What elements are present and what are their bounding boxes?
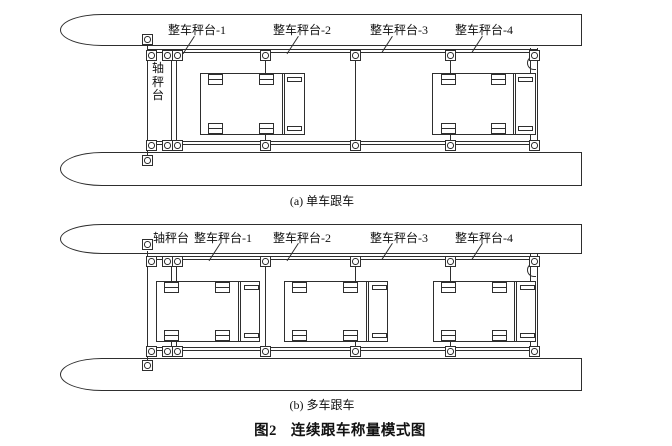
load-cell-sensor [146,256,157,267]
truck [284,281,388,342]
platform-boundary-line [265,260,266,348]
rail-line [147,144,538,145]
load-cell-sensor [146,346,157,357]
sensor-dot [144,36,151,43]
load-cell-sensor [350,140,361,151]
platform-boundary-line [355,53,356,141]
sensor-dot [148,348,155,355]
cab-wheel-bar [287,126,302,131]
wheel-axle-line [441,79,456,80]
sensor-dot [262,52,269,59]
wheel-axle-line [491,128,506,129]
truck [200,73,305,135]
platform-label-a3: 整车秤台-3 [370,21,428,38]
platform-label-a4: 整车秤台-4 [455,21,513,38]
sensor-dot [447,52,454,59]
sensor-dot [144,157,151,164]
truck-wheel [492,330,507,341]
cab-wheel-bar [518,77,533,82]
sensor-dot [174,52,181,59]
axle-scale-left-line [147,45,148,155]
load-cell-sensor [445,50,456,61]
load-cell-sensor [146,50,157,61]
truck-wheel [492,282,507,293]
subcaption-a: (a) 单车跟车 [290,192,354,209]
cab-wheel-bar [287,77,302,82]
truck-wheel [441,123,456,134]
load-cell-sensor [142,239,153,250]
wheel-axle-line [208,128,223,129]
lane-strip-bottom-a [60,152,582,186]
load-cell-sensor [260,50,271,61]
sensor-dot [174,348,181,355]
sensor-dot [174,142,181,149]
truck [432,73,536,135]
rail-line [147,141,538,142]
wheel-axle-line [292,287,307,288]
truck-wheel [343,282,358,293]
load-cell-sensor [142,34,153,45]
platform-label-b1: 整车秤台-1 [194,229,252,246]
load-cell-sensor [172,256,183,267]
figure-caption: 图2连续跟车称量模式图 [254,419,426,440]
sensor-dot [352,258,359,265]
wheel-axle-line [259,79,274,80]
truck-wheel [491,74,506,85]
wheel-axle-line [441,128,456,129]
axle-scale-label-b: 轴秤台 [153,229,189,246]
sensor-dot [531,52,538,59]
sensor-dot [447,142,454,149]
load-cell-sensor [529,50,540,61]
truck-wheel [164,330,179,341]
cab-wheel-bar [518,126,533,131]
truck-wheel [491,123,506,134]
sensor-dot [144,241,151,248]
load-cell-sensor [172,50,183,61]
platform-label-a1: 整车秤台-1 [168,21,226,38]
sensor-dot [262,258,269,265]
axle-scale-left-line [147,251,148,361]
wheel-axle-line [492,335,507,336]
load-cell-sensor [445,346,456,357]
sensor-dot [148,52,155,59]
load-cell-sensor [350,50,361,61]
sensor-dot [447,348,454,355]
sensor-dot [531,258,538,265]
cab-wheel-bar [372,333,387,338]
truck-wheel [292,330,307,341]
subcaption-b: (b) 多车跟车 [290,396,355,413]
wheel-axle-line [441,335,456,336]
truck-wheel [259,74,274,85]
sensor-dot [174,258,181,265]
wheel-axle-line [343,287,358,288]
truck-wheel [441,330,456,341]
truck-wheel [441,74,456,85]
wheel-axle-line [215,287,230,288]
sensor-dot [148,258,155,265]
platform-label-b3: 整车秤台-3 [370,229,428,246]
wheel-axle-line [441,287,456,288]
sensor-dot [531,142,538,149]
truck-wheel [208,123,223,134]
wheel-axle-line [492,287,507,288]
platform1-left-line [176,61,177,140]
load-cell-sensor [260,256,271,267]
cab-wheel-bar [372,285,387,290]
rail-line [147,49,538,50]
truck-wheel [343,330,358,341]
truck-wheel [441,282,456,293]
cab-divider [513,74,516,134]
load-cell-sensor [172,346,183,357]
load-cell-sensor [445,140,456,151]
cab-divider [514,282,517,341]
wheel-axle-line [164,335,179,336]
load-cell-sensor [445,256,456,267]
truck [156,281,260,342]
truck-wheel [164,282,179,293]
rail-line [147,350,538,351]
wheel-axle-line [259,128,274,129]
cab-wheel-bar [244,285,259,290]
load-cell-sensor [529,256,540,267]
load-cell-sensor [529,140,540,151]
axle-scale-right-line [171,61,172,140]
lane-strip-bottom-b [60,358,582,391]
rail-line [147,256,538,257]
sensor-dot [164,348,171,355]
truck-wheel [292,282,307,293]
sensor-dot [144,362,151,369]
rail-line [147,52,538,53]
sensor-dot [352,348,359,355]
truck-wheel [215,330,230,341]
load-cell-sensor [260,140,271,151]
cab-wheel-bar [520,285,535,290]
wheel-axle-line [491,79,506,80]
sensor-dot [531,348,538,355]
cab-wheel-bar [520,333,535,338]
load-cell-sensor [146,140,157,151]
load-cell-sensor [172,140,183,151]
platform-label-b4: 整车秤台-4 [455,229,513,246]
sensor-dot [447,258,454,265]
pit-end-line [537,254,538,357]
platform-label-a2: 整车秤台-2 [273,21,331,38]
sensor-dot [352,142,359,149]
load-cell-sensor [350,256,361,267]
wheel-axle-line [215,335,230,336]
truck-wheel [208,74,223,85]
wheel-axle-line [343,335,358,336]
axle-scale-label-a: 轴秤台 [151,62,165,103]
load-cell-sensor [142,360,153,371]
wheel-axle-line [292,335,307,336]
cab-divider [366,282,369,341]
figure-2-canvas: 整车秤台-1 整车秤台-2 整车秤台-3 整车秤台-4 轴秤台 [0,0,672,446]
cab-wheel-bar [244,333,259,338]
sensor-dot [352,52,359,59]
sensor-dot [262,348,269,355]
pit-end-line [537,48,538,150]
sensor-dot [164,52,171,59]
sensor-dot [164,258,171,265]
load-cell-sensor [529,346,540,357]
load-cell-sensor [142,155,153,166]
rail-line [147,347,538,348]
sensor-dot [164,142,171,149]
rail-line [147,259,538,260]
cab-divider [238,282,241,341]
wheel-axle-line [208,79,223,80]
figure-caption-title: 连续跟车称量模式图 [291,423,426,439]
truck-wheel [215,282,230,293]
load-cell-sensor [350,346,361,357]
platform-label-b2: 整车秤台-2 [273,229,331,246]
truck-wheel [259,123,274,134]
sensor-dot [148,142,155,149]
sensor-dot [262,142,269,149]
truck [433,281,536,342]
cab-divider [282,74,285,134]
load-cell-sensor [260,346,271,357]
wheel-axle-line [164,287,179,288]
figure-caption-number: 图2 [254,423,277,439]
